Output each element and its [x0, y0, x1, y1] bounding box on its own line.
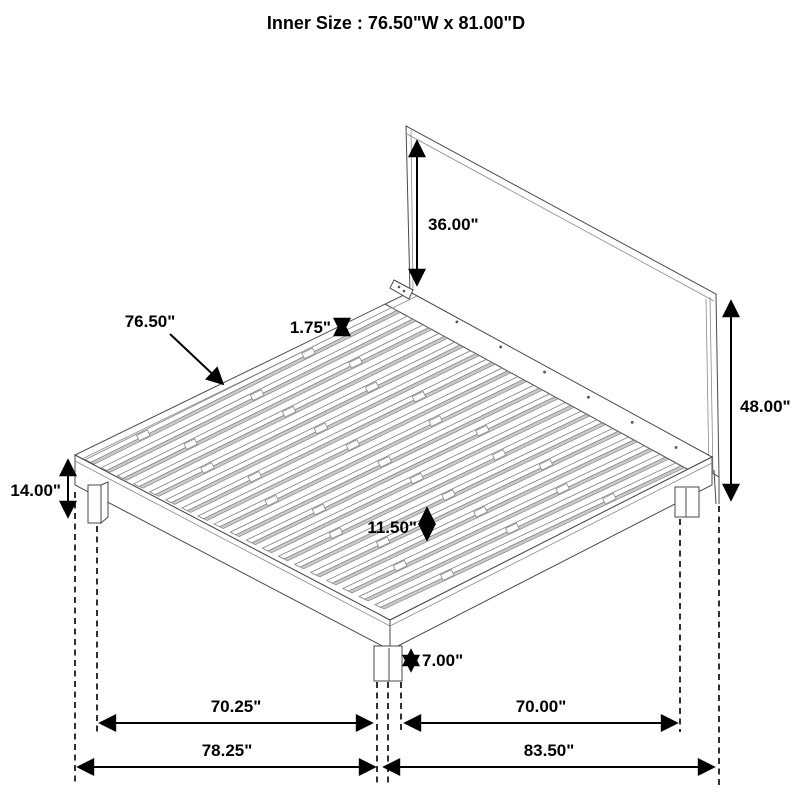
dim-label-36: 36.00" [428, 215, 479, 234]
dim-label-8350: 83.50" [524, 741, 575, 760]
dim-label-48: 48.00" [740, 397, 791, 416]
dim-label-7650: 76.50" [125, 312, 176, 331]
leg-front [374, 646, 402, 681]
dim-label-1150: 11.50" [367, 518, 417, 537]
diagram-canvas: 36.00" 48.00" 76.50" 1.75" 11.50" 14.00"… [0, 0, 800, 800]
dim-label-700: 7.00" [422, 651, 463, 670]
leg-left [88, 482, 108, 523]
dim-label-7000: 70.00" [516, 697, 567, 716]
page-title: Inner Size : 76.50"W x 81.00"D [267, 13, 525, 33]
leg-right [675, 487, 699, 517]
dim-label-1400: 14.00" [10, 481, 61, 500]
dim-leader-7650 [170, 334, 223, 384]
dim-label-7025: 70.25" [211, 697, 262, 716]
dim-label-175: 1.75" [290, 318, 331, 337]
dim-label-7825: 78.25" [202, 741, 253, 760]
bed-dimension-diagram: 36.00" 48.00" 76.50" 1.75" 11.50" 14.00"… [0, 0, 800, 800]
